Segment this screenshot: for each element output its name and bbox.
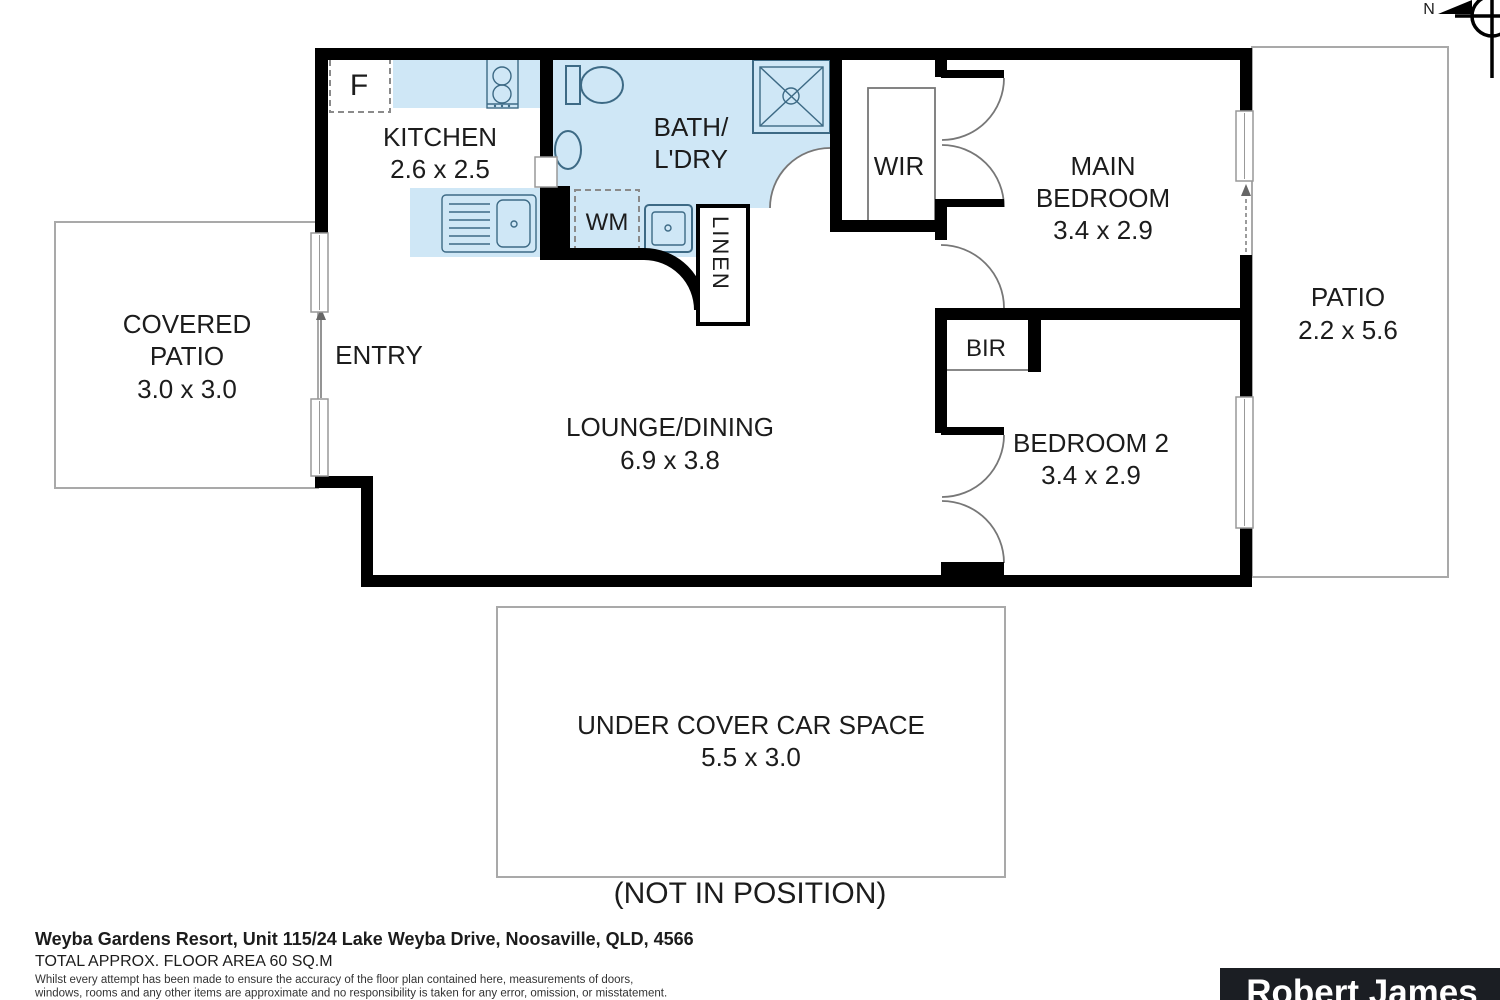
floor-plan-svg: N F KITCHEN 2.6 x 2.5 BATH/ L'DRY WM LIN… [0, 0, 1500, 1000]
agency-logo-text: Robert James [1246, 973, 1477, 1000]
fridge-label: F [350, 69, 368, 102]
lounge-dims: 6.9 x 3.8 [620, 445, 720, 475]
kitchen-dims: 2.6 x 2.5 [390, 154, 490, 184]
bath-label-line2: L'DRY [654, 144, 728, 174]
main-bedroom-slider-arrow [1241, 184, 1251, 253]
kitchen-label: KITCHEN [383, 122, 497, 152]
bedroom2-label: BEDROOM 2 [1013, 428, 1169, 458]
property-address: Weyba Gardens Resort, Unit 115/24 Lake W… [35, 929, 694, 949]
bir-label: BIR [966, 335, 1006, 362]
lounge-label: LOUNGE/DINING [566, 412, 774, 442]
bedroom2-door-arc-bottom [942, 501, 1004, 563]
patio-outline [1252, 47, 1448, 577]
disclaimer-line2: windows, rooms and any other items are a… [34, 988, 667, 1000]
wm-label: WM [586, 209, 629, 236]
agency-logo: Robert James [1220, 968, 1500, 1000]
covered-patio-dims: 3.0 x 3.0 [137, 374, 237, 404]
covered-patio-label-line1: COVERED [123, 309, 252, 339]
disclaimer-line1: Whilst every attempt has been made to en… [35, 974, 633, 986]
main-bedroom-door-arc [941, 245, 1004, 308]
patio-label: PATIO [1311, 282, 1385, 312]
bath-label-line1: BATH/ [654, 112, 729, 142]
bedroom2-dims: 3.4 x 2.9 [1041, 460, 1141, 490]
wir-door-arc-bottom [942, 145, 1004, 207]
main-bedroom-label-line1: MAIN [1071, 151, 1136, 181]
linen-label: LINEN [708, 216, 733, 291]
main-bedroom-label-line2: BEDROOM [1036, 183, 1170, 213]
floor-area-text: TOTAL APPROX. FLOOR AREA 60 SQ.M [35, 953, 333, 970]
bath-pocket-door [535, 157, 557, 187]
bedroom2-door-arc-top [942, 435, 1004, 497]
north-arrow [1438, 0, 1472, 14]
patio-dims: 2.2 x 5.6 [1298, 315, 1398, 345]
car-space-note: (NOT IN POSITION) [614, 877, 887, 910]
floor-plan-page: N F KITCHEN 2.6 x 2.5 BATH/ L'DRY WM LIN… [0, 0, 1500, 1000]
wir-door-arc-top [942, 78, 1004, 140]
entry-label: ENTRY [335, 340, 423, 370]
wir-label: WIR [874, 151, 925, 181]
car-space-dims: 5.5 x 3.0 [701, 742, 801, 772]
compass-icon: N [1423, 0, 1500, 78]
north-label: N [1423, 1, 1435, 18]
main-bedroom-dims: 3.4 x 2.9 [1053, 215, 1153, 245]
car-space-label: UNDER COVER CAR SPACE [577, 710, 925, 740]
covered-patio-label-line2: PATIO [150, 341, 224, 371]
